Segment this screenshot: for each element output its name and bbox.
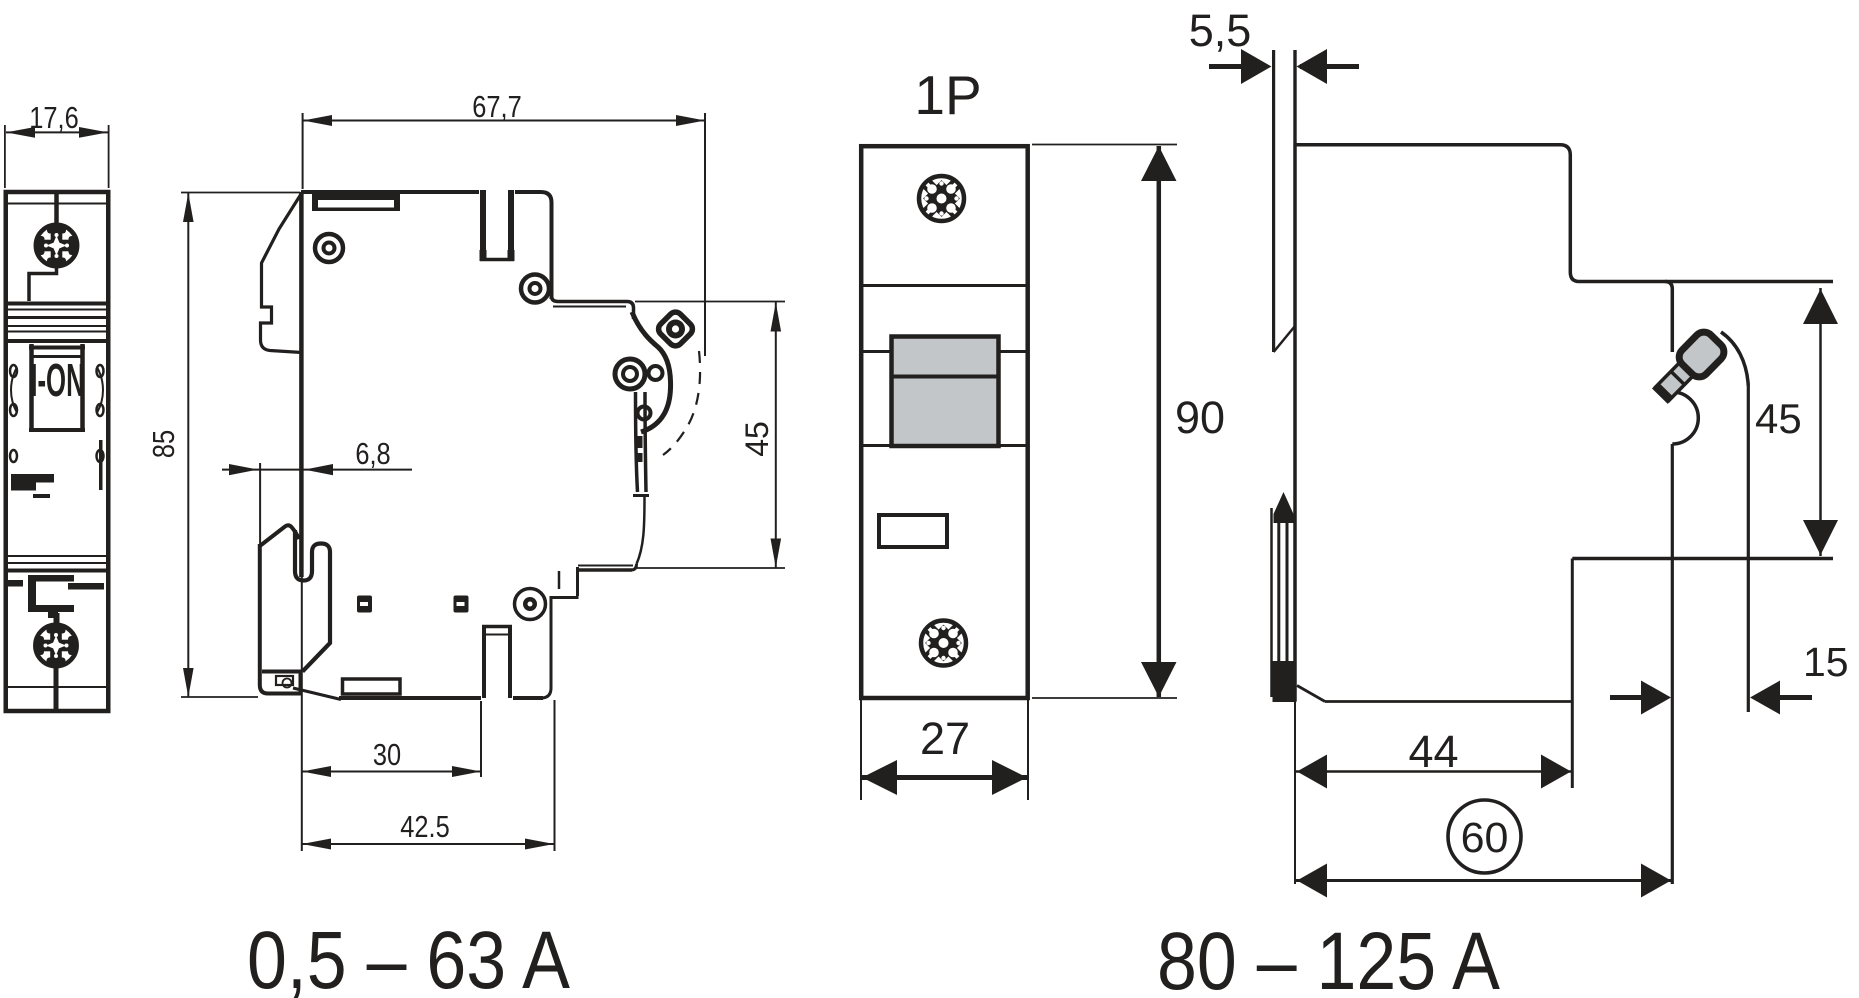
svg-text:45: 45 — [739, 421, 775, 457]
svg-text:15: 15 — [1803, 639, 1849, 685]
svg-text:67,7: 67,7 — [472, 90, 521, 125]
svg-text:80 – 125 A: 80 – 125 A — [1157, 916, 1500, 998]
svg-text:1P: 1P — [914, 64, 981, 126]
svg-text:0,5 – 63 A: 0,5 – 63 A — [247, 915, 570, 998]
svg-text:6,8: 6,8 — [355, 437, 390, 472]
svg-text:45: 45 — [1755, 395, 1802, 442]
svg-text:60: 60 — [1461, 814, 1509, 862]
svg-text:17,6: 17,6 — [29, 101, 78, 136]
svg-text:44: 44 — [1408, 726, 1458, 777]
svg-text:85: 85 — [147, 430, 182, 458]
svg-text:I-ON: I-ON — [30, 354, 84, 406]
svg-text:5,5: 5,5 — [1189, 5, 1252, 56]
svg-text:42.5: 42.5 — [400, 810, 449, 845]
svg-text:30: 30 — [373, 738, 401, 773]
svg-text:90: 90 — [1175, 392, 1225, 443]
svg-text:27: 27 — [920, 713, 970, 764]
